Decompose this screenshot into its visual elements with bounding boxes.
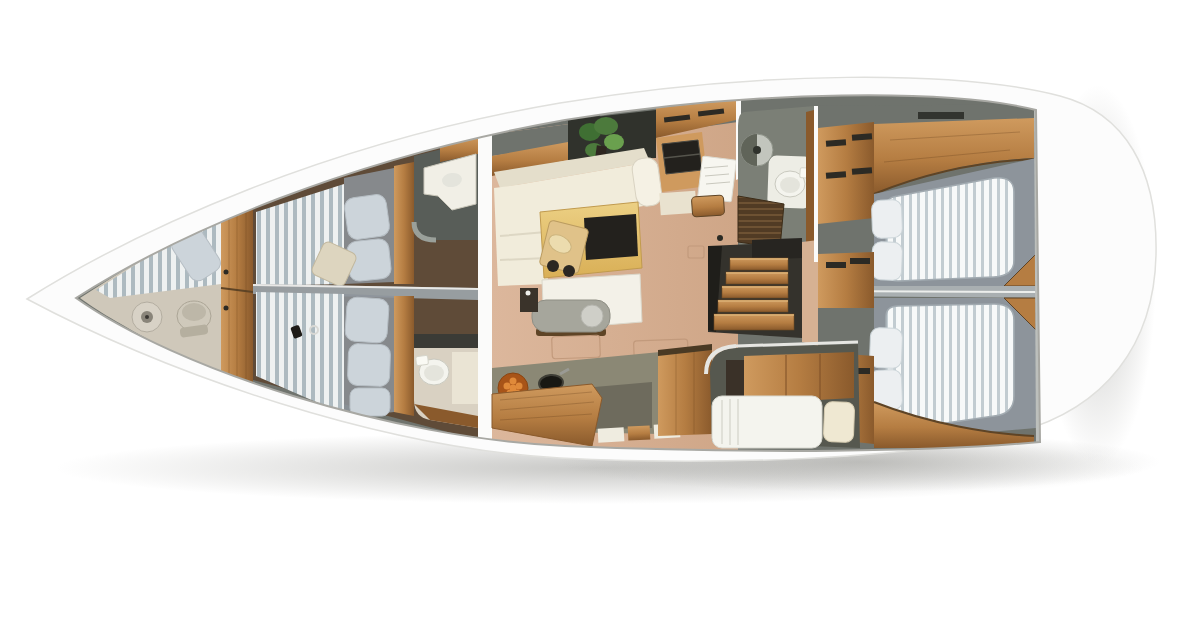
centerline-cabinet xyxy=(818,252,874,308)
double-berth-mattress xyxy=(886,304,1014,430)
pillow xyxy=(871,241,902,280)
desk-mat xyxy=(659,191,696,215)
table-dark-leaf xyxy=(584,214,638,260)
floor-fitting xyxy=(717,235,723,241)
pillow xyxy=(347,343,390,386)
forward-bulkhead-doors xyxy=(221,198,253,388)
door-handle xyxy=(224,306,229,311)
cup xyxy=(547,260,559,272)
stair-hood xyxy=(752,238,802,260)
bow-toilet xyxy=(177,301,211,338)
dining-table xyxy=(539,202,642,278)
pillow xyxy=(343,193,390,240)
door-handle xyxy=(224,270,229,275)
pillow xyxy=(871,199,902,238)
aft-head xyxy=(738,106,814,254)
deck-hatch xyxy=(918,112,964,119)
pillow xyxy=(869,327,902,368)
yacht-floorplan-stage: Sailing yacht interior layout plan - top… xyxy=(0,0,1200,623)
door-post-latch xyxy=(526,291,531,296)
bench-seat xyxy=(532,300,610,336)
cup xyxy=(563,265,575,277)
main-bulkhead xyxy=(478,134,492,446)
forward-head-starboard xyxy=(414,334,478,428)
galley-tall-unit xyxy=(658,344,712,436)
yacht-floorplan: Sailing yacht interior layout plan - top… xyxy=(0,0,1200,623)
single-berth xyxy=(712,396,822,448)
bow-sink xyxy=(132,302,162,332)
shower-floor xyxy=(452,352,478,404)
pillow xyxy=(823,401,854,442)
pillow xyxy=(350,388,390,416)
nav-station xyxy=(656,100,736,217)
head-wall-band xyxy=(414,334,478,348)
partition-line xyxy=(814,106,818,262)
nav-stool xyxy=(691,195,724,217)
utility-cabin xyxy=(706,342,860,448)
head-door-jamb xyxy=(806,110,814,252)
aft-head-basin xyxy=(741,134,773,166)
companionway xyxy=(708,238,802,338)
pillow xyxy=(345,297,390,344)
locker xyxy=(818,122,874,224)
locker-band xyxy=(394,162,414,284)
locker-band xyxy=(394,296,414,416)
